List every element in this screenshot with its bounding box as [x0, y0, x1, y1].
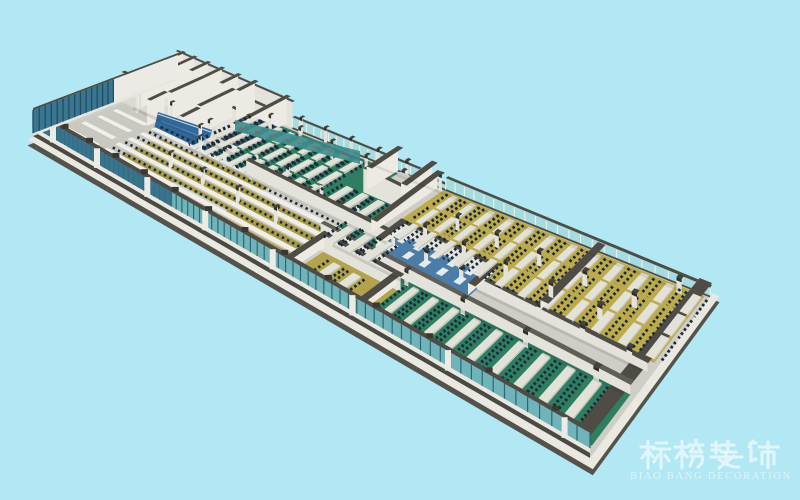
svg-text:BIAO BANG DECORATION: BIAO BANG DECORATION — [630, 471, 792, 482]
